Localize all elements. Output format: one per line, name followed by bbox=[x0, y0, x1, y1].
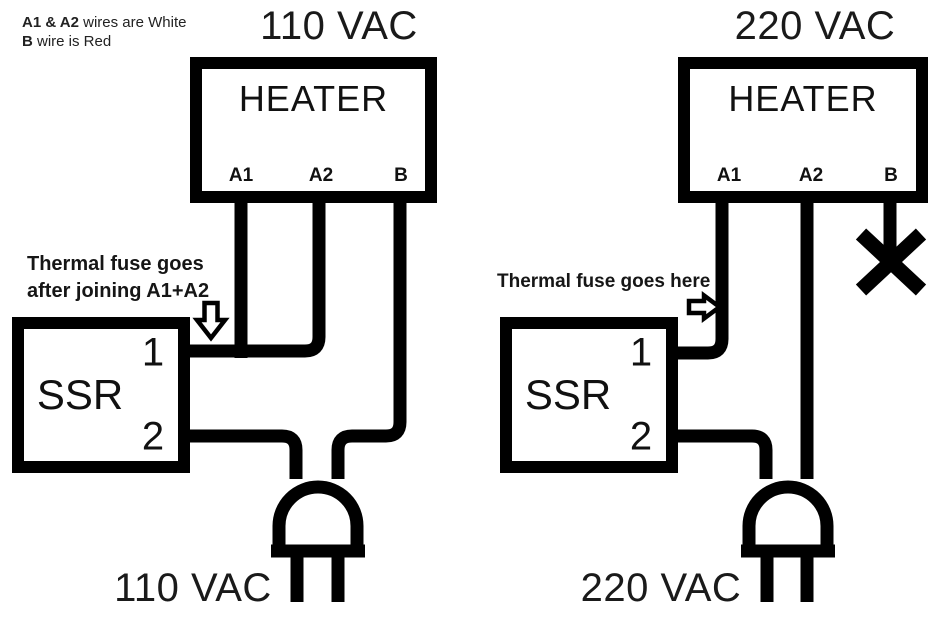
plug-dome bbox=[749, 487, 827, 548]
left-heater-box: HEATER A1 A2 B bbox=[190, 57, 437, 203]
note-line1-bold: A1 & A2 bbox=[22, 14, 79, 31]
left-annotation-line2: after joining A1+A2 bbox=[27, 278, 209, 305]
right-annotation: Thermal fuse goes here bbox=[497, 271, 710, 293]
left-wiring bbox=[186, 197, 400, 479]
right-ssr-terminal-1: 1 bbox=[630, 331, 652, 376]
note-line1-rest: wires are White bbox=[79, 14, 187, 31]
note-line-1: A1 & A2 wires are White bbox=[22, 13, 187, 32]
left-annotation-line1: Thermal fuse goes bbox=[27, 251, 209, 278]
wire-b bbox=[338, 197, 400, 479]
right-ssr-terminal-2: 2 bbox=[630, 415, 652, 460]
note-line2-rest: wire is Red bbox=[33, 33, 111, 50]
left-heater-label: HEATER bbox=[202, 78, 425, 120]
left-ssr-terminal-1: 1 bbox=[142, 331, 164, 376]
wiring-diagram: A1 & A2 wires are White B wire is Red 11… bbox=[0, 0, 951, 641]
wire-ssr2 bbox=[186, 436, 296, 479]
note-line-2: B wire is Red bbox=[22, 32, 187, 51]
down-arrow-icon bbox=[197, 303, 225, 338]
right-heater-box: HEATER A1 A2 B bbox=[678, 57, 928, 203]
right-terminal-b: B bbox=[884, 165, 898, 187]
right-source-label: 220 VAC bbox=[551, 566, 771, 611]
left-terminal-b: B bbox=[394, 165, 408, 187]
right-terminal-a1: A1 bbox=[717, 165, 741, 187]
left-ssr-terminal-2: 2 bbox=[142, 415, 164, 460]
right-terminal-a2: A2 bbox=[799, 165, 823, 187]
right-ssr-box: SSR 1 2 bbox=[500, 317, 678, 473]
right-ssr-label: SSR bbox=[525, 371, 611, 419]
right-title: 220 VAC bbox=[705, 4, 925, 49]
left-ssr-label: SSR bbox=[37, 371, 123, 419]
wire-color-note: A1 & A2 wires are White B wire is Red bbox=[22, 13, 187, 51]
note-line2-bold: B bbox=[22, 33, 33, 50]
wire-ssr2 bbox=[674, 436, 766, 479]
plug-dome bbox=[279, 487, 357, 548]
left-ssr-box: SSR 1 2 bbox=[12, 317, 190, 473]
right-arrow-icon bbox=[689, 296, 720, 319]
left-source-label: 110 VAC bbox=[83, 566, 303, 611]
right-heater-label: HEATER bbox=[690, 78, 916, 120]
left-terminal-a1: A1 bbox=[229, 165, 253, 187]
left-terminal-a2: A2 bbox=[309, 165, 333, 187]
left-title: 110 VAC bbox=[229, 4, 449, 49]
left-annotation: Thermal fuse goes after joining A1+A2 bbox=[27, 251, 209, 305]
